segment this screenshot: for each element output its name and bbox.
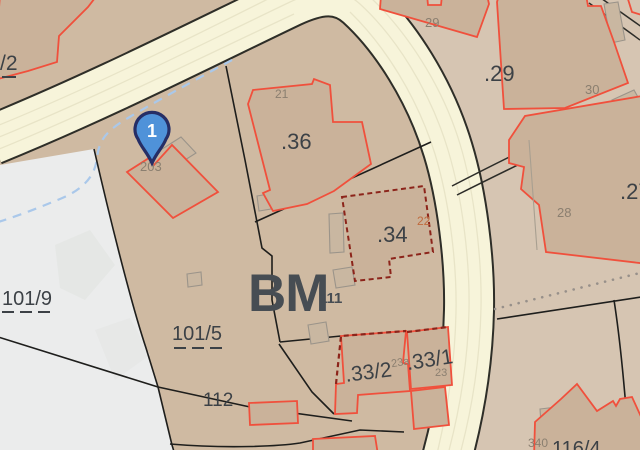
ghost-building xyxy=(329,213,344,253)
building-33-annex[interactable] xyxy=(411,387,449,429)
parcel-label-2: /2 xyxy=(0,52,18,75)
shed xyxy=(308,322,329,344)
house-number-29: 29 xyxy=(425,15,439,30)
house-number-23: 23 xyxy=(435,367,447,379)
house-number-21: 21 xyxy=(275,87,289,101)
shed xyxy=(333,267,355,288)
house-number-340: 340 xyxy=(528,436,548,450)
house-number-30: 30 xyxy=(585,82,599,97)
shed xyxy=(187,272,202,287)
parcel-label-112: 112 xyxy=(203,390,233,411)
building-112-shed[interactable] xyxy=(249,401,298,425)
bm-label: BM xyxy=(248,264,328,323)
parcel-label-116-4: 116/4 xyxy=(552,438,601,450)
house-number-22: 22 xyxy=(417,214,431,228)
house-number-28: 28 xyxy=(557,205,571,220)
bm-number-111: 111 xyxy=(319,290,342,307)
parcel-label-36: .36 xyxy=(281,129,312,154)
building-bottom-edge[interactable] xyxy=(313,436,378,450)
parcel-label-34: .34 xyxy=(377,222,408,247)
parcel-label-101-5: 101/5 xyxy=(172,323,222,345)
parcel-label-101-9: 101/9 xyxy=(2,288,52,310)
parcel-label-27: .27 xyxy=(620,179,640,204)
parcel-label-29: .29 xyxy=(484,61,515,86)
marker-pin-number: 1 xyxy=(147,121,157,141)
map-canvas[interactable]: /2 101/9 101/5 112 116/4 340 BM 111 203 … xyxy=(0,0,640,450)
